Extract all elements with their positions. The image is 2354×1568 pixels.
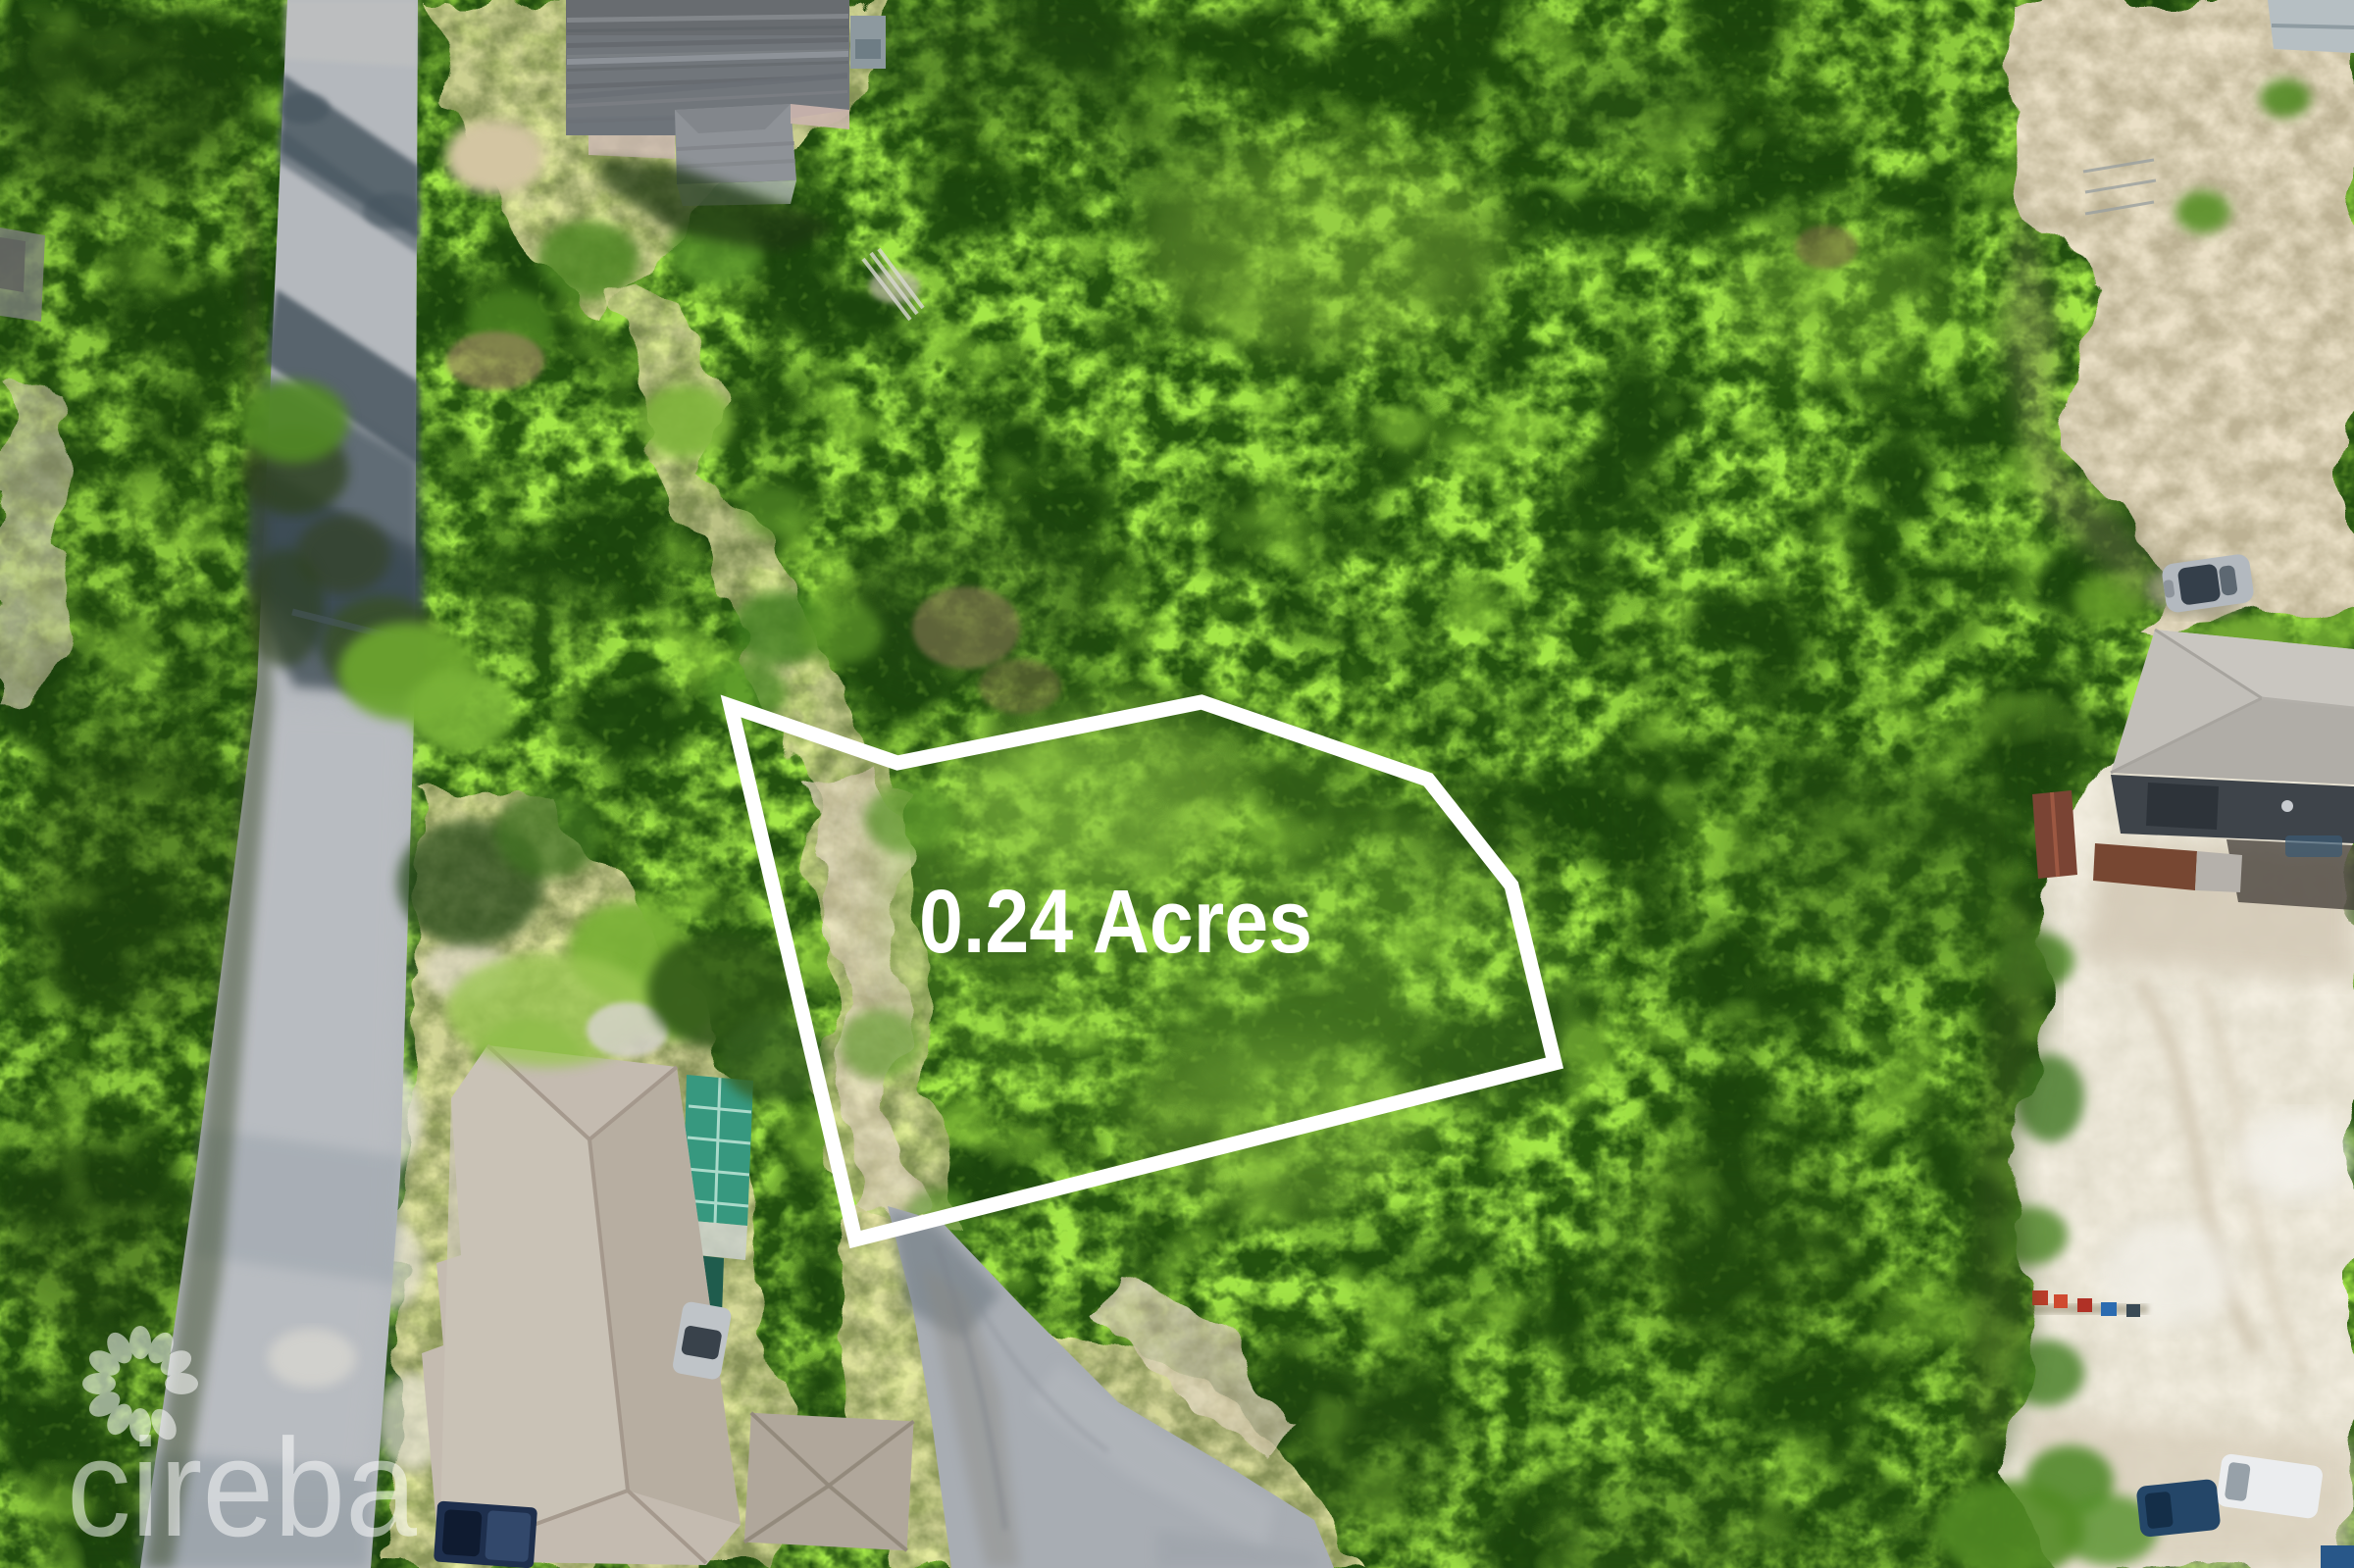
svg-text:cireba: cireba — [67, 1410, 417, 1566]
svg-text:0.24 Acres: 0.24 Acres — [919, 872, 1312, 972]
